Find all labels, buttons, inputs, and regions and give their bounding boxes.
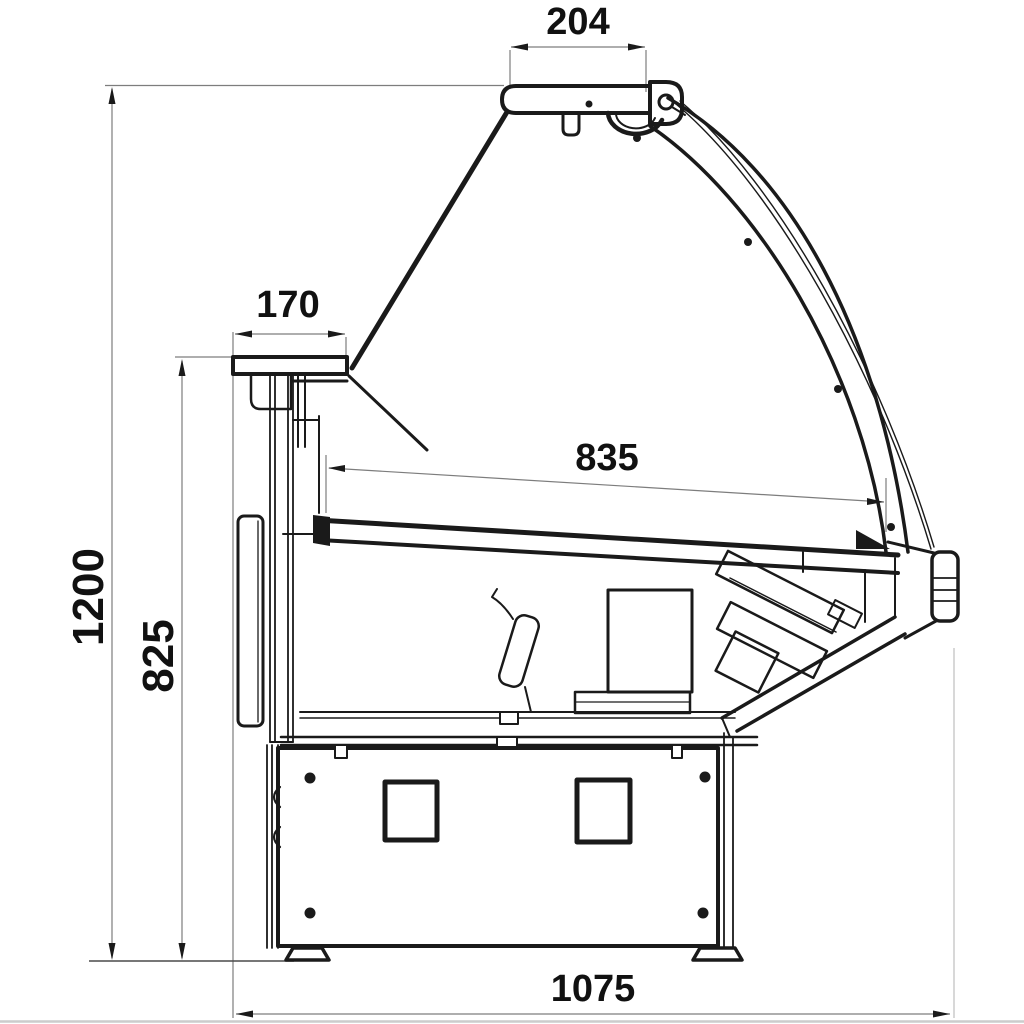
well-bottom xyxy=(281,712,757,749)
leveling-foot xyxy=(693,948,742,960)
probe-holder xyxy=(497,613,541,689)
glass-rivet xyxy=(834,385,842,393)
screw xyxy=(305,773,316,784)
interior-ramp xyxy=(349,376,427,450)
vent-cutout xyxy=(577,780,630,842)
screw xyxy=(700,772,711,783)
bumper-profile xyxy=(932,552,958,621)
glass-rivet xyxy=(744,238,752,246)
probe-cable xyxy=(492,589,513,619)
dim-overall-height-label: 1200 xyxy=(64,548,113,646)
dim-overall-depth-label: 1075 xyxy=(551,968,636,1010)
base-panel xyxy=(278,748,718,946)
canopy-rivet xyxy=(586,101,593,108)
canopy-tab xyxy=(563,113,579,135)
dimension-labels: 204 170 835 1200 825 1075 xyxy=(64,1,639,1010)
back-wall xyxy=(238,375,293,742)
equipment-box xyxy=(608,590,692,692)
vent-cutout xyxy=(385,782,437,840)
dim-shelf-depth-label: 170 xyxy=(256,284,319,326)
hinge-bolt xyxy=(659,95,673,109)
hinge-rivet xyxy=(633,134,641,142)
angled-clip xyxy=(828,600,862,628)
base-unit xyxy=(267,733,742,960)
curved-front-glass xyxy=(650,98,934,552)
glass-rivet xyxy=(887,523,895,531)
leveling-foot xyxy=(286,948,329,960)
screw xyxy=(698,908,709,919)
dim-deck-depth-label: 835 xyxy=(575,437,638,479)
rear-glass xyxy=(352,112,507,368)
deli-counter-section-drawing: 204 170 835 1200 825 1075 xyxy=(0,0,1024,1024)
dim-canopy-width-label: 204 xyxy=(546,1,609,43)
interior-equipment xyxy=(492,551,862,713)
rear-panel xyxy=(238,516,263,726)
rear-counter-shelf xyxy=(233,357,427,513)
drawing-page: 204 170 835 1200 825 1075 xyxy=(0,0,1024,1024)
dim-counter-height-label: 825 xyxy=(134,619,183,692)
angled-square xyxy=(716,632,779,693)
display-deck xyxy=(283,515,898,573)
front-rail-bumper xyxy=(856,530,958,638)
screw xyxy=(305,908,316,919)
glass-pane xyxy=(676,104,931,549)
shelf-bracket xyxy=(251,375,291,409)
deck-end-cap xyxy=(313,515,330,546)
